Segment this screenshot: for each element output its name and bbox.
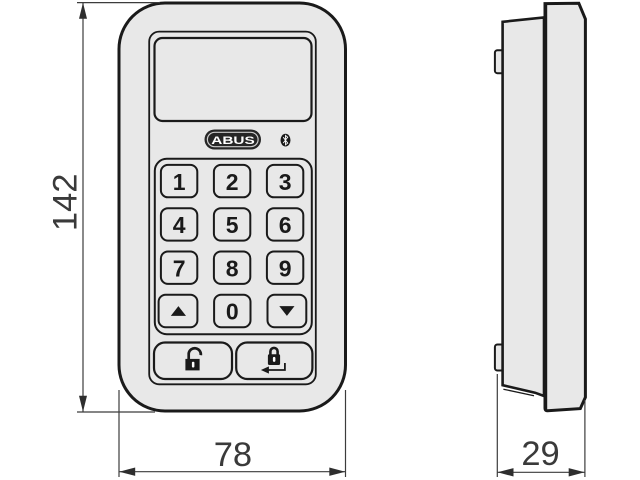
svg-text:142: 142: [47, 174, 85, 232]
svg-text:5: 5: [226, 212, 239, 238]
svg-text:1: 1: [173, 169, 186, 195]
svg-text:8: 8: [226, 255, 239, 281]
svg-text:6: 6: [279, 212, 292, 238]
svg-text:4: 4: [173, 212, 186, 238]
svg-text:ABUS: ABUS: [211, 135, 255, 147]
svg-text:0: 0: [226, 299, 239, 325]
svg-text:7: 7: [173, 255, 186, 281]
svg-text:2: 2: [226, 169, 239, 195]
svg-text:78: 78: [214, 436, 252, 474]
svg-text:9: 9: [279, 255, 292, 281]
svg-text:3: 3: [279, 169, 292, 195]
svg-text:29: 29: [521, 435, 559, 473]
